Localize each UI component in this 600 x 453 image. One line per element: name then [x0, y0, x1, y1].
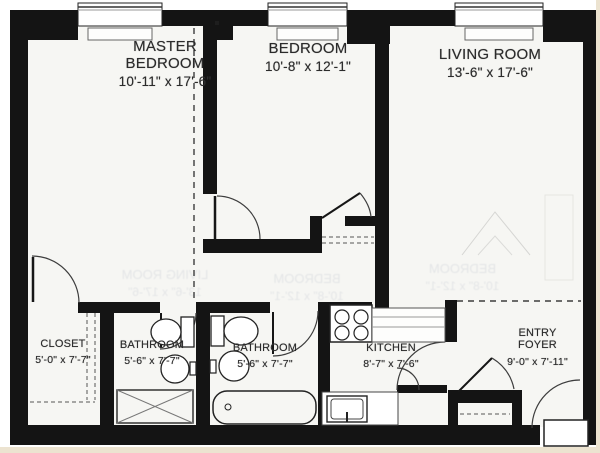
- room-label-bathroom-2: BATHROOM 5'-6" x 7'-7": [220, 342, 310, 372]
- paper-edge-right: [596, 0, 600, 453]
- room-dimensions: 5'-6" x 7'-7": [237, 358, 293, 370]
- ghost-bleed-text: BEDROOM 10'-8" x 12'-1": [385, 262, 540, 295]
- room-dimensions: 5'-0" x 7'-7": [35, 354, 91, 366]
- room-name: ENTRY: [495, 327, 580, 339]
- windows: [78, 3, 543, 40]
- room-label-master-bedroom: MASTER BEDROOM 10'-11" x 17'-6": [80, 39, 250, 91]
- room-dimensions: 10'-8" x 12'-1": [265, 59, 351, 74]
- room-dimensions: 8'-7" x 7'-6": [363, 358, 419, 370]
- kitchen-counter: [372, 308, 445, 342]
- room-label-kitchen: KITCHEN 8'-7" x 7'-6": [346, 342, 436, 372]
- room-dimensions: 13'-6" x 17'-6": [447, 65, 533, 80]
- room-dimensions: 10'-11" x 17'-6": [119, 74, 212, 89]
- window-master-bedroom: [78, 3, 162, 40]
- window-living-room: [455, 3, 543, 40]
- ghost-bleed-text: LIVING ROOM 13'-6" x 17'-6": [85, 268, 245, 301]
- room-label-entry-foyer: ENTRY FOYER 9'-0" x 7'-11": [495, 327, 580, 370]
- room-name: MASTER: [80, 39, 250, 56]
- entry-door-slab: [544, 420, 588, 446]
- room-name: BEDROOM: [80, 56, 250, 73]
- room-label-bathroom-1: BATHROOM 5'-6" x 7'-7": [108, 339, 196, 369]
- room-name: LIVING ROOM: [405, 47, 575, 64]
- room-name: FOYER: [495, 339, 580, 351]
- paper-edge-bottom: [0, 447, 600, 453]
- room-name: BEDROOM: [233, 41, 383, 58]
- room-name: BATHROOM: [108, 339, 196, 351]
- room-dimensions: 9'-0" x 7'-11": [507, 356, 568, 368]
- room-name: BATHROOM: [220, 342, 310, 354]
- window-bedroom: [268, 3, 347, 40]
- stove-fixture: [330, 305, 372, 342]
- kitchen-sink-fixture: [322, 392, 398, 425]
- room-label-closet: CLOSET 5'-0" x 7'-7": [20, 338, 106, 368]
- room-name: KITCHEN: [346, 342, 436, 354]
- room-dimensions: 5'-6" x 7'-7": [124, 355, 180, 367]
- room-name: CLOSET: [20, 338, 106, 350]
- ghost-bleed-text: BEDROOM 10'-8" x 12'-1": [237, 272, 377, 305]
- floor-plan: MASTER BEDROOM 10'-11" x 17'-6" BEDROOM …: [0, 0, 600, 453]
- room-label-bedroom: BEDROOM 10'-8" x 12'-1": [233, 41, 383, 76]
- room-label-living-room: LIVING ROOM 13'-6" x 17'-6": [405, 47, 575, 82]
